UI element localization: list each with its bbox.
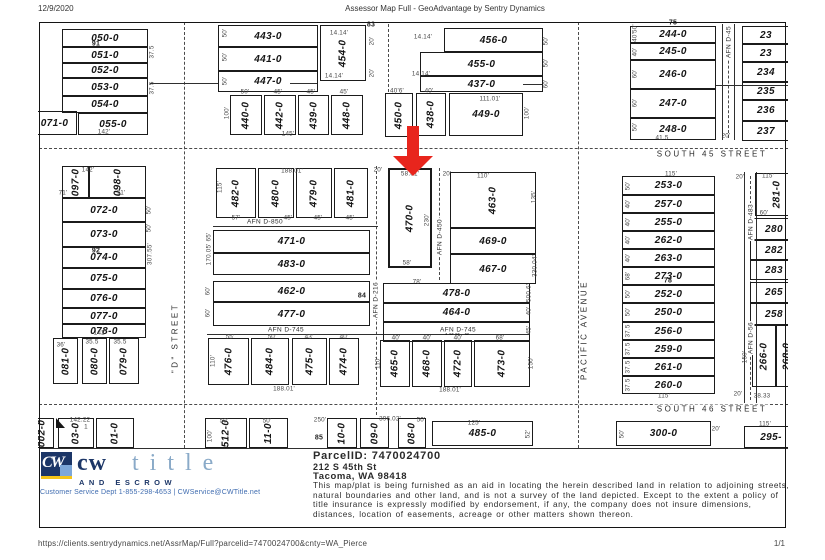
parcel-number: 052-0 — [91, 65, 119, 76]
parcel-number: 266-0 — [759, 342, 770, 370]
parcel: 09-0 — [360, 418, 389, 448]
dimension-label: 40' — [425, 88, 434, 95]
dimension-label: 91 — [92, 41, 100, 48]
dimension-label: 40' — [625, 236, 632, 245]
parcel: 237 — [742, 121, 790, 141]
parcel: 465-0 — [380, 340, 410, 387]
parcel-number: 258 — [765, 309, 783, 320]
dimension-label: 50' — [263, 418, 272, 425]
dimension-label: 45' — [284, 215, 293, 222]
assessor-map-page: 12/9/2020 Assessor Map Full - GeoAdvanta… — [0, 0, 825, 560]
road-label: AFN D-450 — [437, 218, 444, 256]
road-label: AFN D-216 — [373, 281, 380, 319]
survey-marker-icon — [56, 418, 65, 428]
cw-logo-blue-square — [60, 465, 72, 476]
dimension-label: 125' — [468, 420, 481, 427]
dimension-label: 115' — [665, 171, 677, 178]
dimension-label: 115' — [759, 421, 771, 428]
parcel: 441-0 — [218, 47, 318, 71]
subject-arrow-head — [393, 156, 433, 176]
parcel: 263-0 — [622, 249, 715, 267]
dimension-label: 115' — [658, 393, 670, 400]
dimension-label: 37.5 — [625, 324, 632, 337]
dimension-label: 52' — [525, 430, 532, 439]
parcel: 300-0 — [616, 421, 711, 446]
dimension-label: 60' — [205, 287, 212, 296]
dimension-label: 100' — [224, 107, 231, 120]
parcel: 250-0 — [622, 303, 715, 322]
dimension-label: 50' — [146, 224, 153, 233]
parcel: 484-0 — [251, 338, 289, 385]
dimension-label: 40' — [526, 307, 533, 316]
parcel-number: 463-0 — [487, 186, 498, 214]
dimension-label: 40' — [423, 335, 432, 342]
dimension-label: 110' — [210, 355, 217, 367]
parcel: 077-0 — [62, 308, 146, 324]
dimension-label: 45' — [346, 215, 355, 222]
brand-cw: cw — [77, 450, 107, 477]
parcel: 447-0 — [218, 71, 318, 92]
disclaimer-text: This map/plat is being furnished as an a… — [313, 481, 791, 519]
road-label: AFN D-745 — [439, 327, 477, 334]
parcel-number: 479-0 — [308, 179, 319, 207]
parcel: 485-0 — [432, 421, 533, 446]
dimension-label: 230' — [424, 214, 431, 227]
dimension-label: 58' — [403, 260, 412, 267]
dimension-label: 83 — [367, 22, 375, 29]
parcel-number: 455-0 — [468, 59, 496, 70]
page-title: Assessor Map Full - GeoAdvantage by Sent… — [345, 4, 545, 13]
dimension-label: 41.5 — [655, 135, 668, 142]
parcel-number: 483-0 — [278, 259, 306, 270]
dimension-label: 14.14' — [325, 73, 343, 80]
parcel-number: 08-0 — [407, 422, 418, 444]
dimension-label: 50' — [543, 37, 550, 46]
parcel: 076-0 — [62, 289, 146, 308]
dimension-label: 14.14' — [412, 71, 430, 78]
dimension-label: 50' — [220, 418, 229, 425]
parcel-number: 071-0 — [41, 118, 69, 129]
parcel-number: 079-0 — [118, 347, 129, 375]
print-date: 12/9/2020 — [38, 4, 74, 13]
parcel-number: 247-0 — [659, 98, 687, 109]
dimension-label: 20' — [736, 174, 745, 181]
parcel: 072-0 — [62, 198, 146, 222]
parcel: 462-0 — [213, 281, 370, 302]
parcel-number: 262-0 — [655, 235, 683, 246]
dimension-label: 45' — [307, 89, 316, 96]
parcel-number: 261-0 — [655, 362, 683, 373]
parcel: 247-0 — [630, 89, 716, 118]
parcel-number: 259-0 — [655, 344, 683, 355]
parcel-number: 480-0 — [270, 179, 281, 207]
road-label: AFN D-483 — [748, 203, 755, 241]
parcel-number: 454-0 — [337, 39, 348, 67]
parcel: 259-0 — [622, 340, 715, 358]
dimension-label: 40' — [625, 254, 632, 263]
dimension-label: 142.22 — [70, 417, 90, 424]
parcel: 234 — [742, 62, 790, 82]
map-line — [744, 172, 745, 403]
dimension-label: 20' — [369, 69, 376, 78]
parcel-number: 295- — [760, 432, 782, 443]
parcel: 052-0 — [62, 63, 148, 78]
dimension-label: 40' — [454, 335, 463, 342]
parcel-number: 447-0 — [254, 76, 282, 87]
parcel-number: 282 — [765, 245, 783, 256]
dimension-label: 50' — [241, 89, 250, 96]
dimension-label: 38.33 — [754, 393, 771, 400]
dimension-label: 115' — [217, 181, 224, 193]
parcel: 455-0 — [420, 52, 543, 76]
map-line — [39, 448, 788, 449]
parcel: 442-0 — [264, 95, 296, 135]
parcel-number: 10-0 — [337, 422, 348, 444]
parcel: 255-0 — [622, 213, 715, 231]
parcel-number: 467-0 — [479, 264, 507, 275]
dimension-label: 40' — [392, 335, 401, 342]
parcel-number: 281-0 — [771, 181, 782, 209]
parcel-number: 469-0 — [479, 236, 507, 247]
parcel: 471-0 — [213, 230, 370, 253]
dimension-label: 60' — [205, 309, 212, 318]
parcel: 464-0 — [383, 303, 530, 322]
parcel-number: 481-0 — [345, 179, 356, 207]
street-label: PACIFIC AVENUE — [580, 278, 589, 382]
dimension-label: 20' — [443, 171, 452, 178]
dimension-label: 35.5 — [85, 339, 98, 346]
parcel: 480-0 — [258, 168, 294, 218]
dimension-label: 50' — [619, 430, 626, 439]
cw-logo: CW — [41, 452, 72, 479]
dimension-label: 36' — [57, 342, 66, 349]
dimension-label: 40' — [625, 200, 632, 209]
parcel: 463-0 — [450, 172, 536, 228]
parcel-number: 245-0 — [659, 46, 687, 57]
dimension-label: 330.04' — [532, 255, 539, 277]
parcel: 483-0 — [213, 253, 370, 275]
dimension-label: 111.01' — [480, 96, 501, 103]
dimension-label: 40' — [632, 48, 639, 57]
parcel: 467-0 — [450, 254, 536, 284]
dimension-label: 170.05' 65' — [206, 233, 213, 266]
road-label: AFN D-56 — [748, 321, 755, 355]
dimension-label: 43' — [305, 334, 314, 341]
parcel: 481-0 — [334, 168, 368, 218]
dimension-label: 45' — [314, 215, 323, 222]
parcel-number: 054-0 — [91, 99, 119, 110]
dimension-label: 60' — [543, 80, 550, 89]
dimension-label: 188.01' — [281, 168, 303, 175]
dimension-label: 14.14' — [414, 34, 432, 41]
street-label: "D" STREET — [171, 301, 180, 375]
dimension-label: 20' — [722, 133, 731, 140]
dimension-label: 50' — [632, 123, 639, 132]
parcel: 236 — [742, 100, 790, 121]
dimension-label: 50' — [146, 206, 153, 215]
parcel-number: 075-0 — [90, 273, 118, 284]
map-line — [388, 24, 389, 92]
parcel-number: 443-0 — [254, 31, 282, 42]
parcel-number: 235 — [757, 86, 775, 97]
parcel: 257-0 — [622, 195, 715, 213]
parcel-number: 255-0 — [655, 217, 683, 228]
dimension-label: 45' — [274, 89, 283, 96]
dimension-label: 100' — [207, 430, 214, 443]
dimension-label: 71' — [59, 190, 68, 197]
parcel: 244-0 — [630, 26, 716, 43]
parcel: 074-0 — [62, 247, 146, 268]
dimension-label: 45' — [340, 89, 349, 96]
dimension-label: 50' — [222, 53, 229, 62]
parcel: 468-0 — [412, 340, 442, 387]
dimension-label: 55' — [226, 334, 235, 341]
street-label: SOUTH 46 STREET — [655, 405, 769, 414]
parcel-number: 482-0 — [230, 179, 241, 207]
dimension-label: 60' — [760, 210, 769, 217]
parcel: 473-0 — [474, 340, 530, 387]
parcel: 477-0 — [213, 302, 370, 326]
parcel-number: 472-0 — [453, 350, 464, 378]
dimension-label: 37.5 — [625, 378, 632, 391]
dimension-label: 20' — [369, 37, 376, 46]
dimension-label: 68' — [625, 272, 632, 281]
parcel-number: 438-0 — [425, 101, 436, 129]
dimension-label: 110' — [375, 357, 382, 369]
parcel: 266-0 — [752, 325, 776, 387]
parcel-number: 448-0 — [341, 101, 352, 129]
parcel: 256-0 — [622, 322, 715, 340]
parcel-number: 263-0 — [655, 253, 683, 264]
dimension-label: 110' — [477, 173, 489, 180]
parcel-number: 257-0 — [655, 199, 683, 210]
parcel-number: 051-0 — [91, 50, 119, 61]
parcel-number: 248-0 — [659, 124, 687, 135]
dimension-label: 50' — [268, 334, 277, 341]
dimension-label: 142' — [94, 330, 107, 337]
parcel: 235 — [742, 82, 790, 100]
dimension-label: 75 — [669, 20, 677, 27]
parcel-number: 464-0 — [443, 307, 471, 318]
dimension-label: 142' — [98, 129, 111, 136]
parcel-number: 283 — [765, 265, 783, 276]
parcel: 01-0 — [96, 418, 134, 448]
dimension-label: 40' — [340, 334, 349, 341]
parcel: 261-0 — [622, 358, 715, 376]
parcel: 439-0 — [298, 95, 329, 135]
parcel-number: 478-0 — [443, 288, 471, 299]
parcel: 438-0 — [416, 93, 446, 136]
parcel-number: 485-0 — [469, 428, 497, 439]
parcel-number: 081-0 — [60, 347, 71, 375]
dimension-label: 250' — [314, 417, 327, 424]
page-number: 1/1 — [774, 539, 785, 548]
parcel-number: 256-0 — [655, 326, 683, 337]
map-clip-left — [2, 24, 38, 527]
dimension-label: 20' — [712, 426, 721, 433]
dimension-label: 145' — [282, 131, 295, 138]
dimension-label: 57' — [232, 215, 241, 222]
parcel-number: 462-0 — [278, 286, 306, 297]
brand-and-escrow: AND ESCROW — [79, 478, 176, 487]
parcel: 071-0 — [32, 111, 77, 135]
parcel-number: 449-0 — [472, 109, 500, 120]
dimension-label: 50' — [625, 290, 632, 299]
parcel: 448-0 — [331, 95, 363, 135]
parcel-number: 450-0 — [394, 101, 405, 129]
parcel-number: 072-0 — [90, 205, 118, 216]
parcel-number: 002-0 — [37, 419, 48, 447]
parcel-number: 441-0 — [254, 54, 282, 65]
parcel: 053-0 — [62, 78, 148, 96]
dimension-label: 50' — [543, 59, 550, 68]
parcel: 075-0 — [62, 268, 146, 289]
street-label: SOUTH 45 STREET — [655, 150, 769, 159]
dimension-label: 135' — [531, 191, 538, 204]
parcel-number: 244-0 — [659, 29, 687, 40]
parcel-number: 03-0 — [71, 422, 82, 444]
parcel: 055-0 — [78, 113, 148, 135]
parcel-number: 23 — [760, 30, 772, 41]
parcel-number: 473-0 — [496, 350, 507, 378]
brand-title: title — [132, 450, 224, 477]
parcel-number: 237 — [757, 126, 775, 137]
dimension-label: 68' — [496, 335, 505, 342]
dimension-label: 40' — [625, 218, 632, 227]
parcel-number: 477-0 — [278, 309, 306, 320]
parcel: 479-0 — [296, 168, 332, 218]
dimension-label: 307.55' — [147, 243, 154, 265]
parcel-number: 471-0 — [278, 236, 306, 247]
road-label: AFN D-745 — [267, 327, 305, 334]
map-line — [150, 83, 218, 84]
parcel-number: 250-0 — [655, 307, 683, 318]
parcel: 246-0 — [630, 60, 716, 89]
dimension-label: 60' — [632, 99, 639, 108]
parcel-number: 265 — [765, 287, 783, 298]
dimension-label: 50' — [625, 308, 632, 317]
parcel-number: 475-0 — [304, 348, 315, 376]
parcel-number: 077-0 — [90, 311, 118, 322]
parcel: 050-0 — [62, 29, 148, 47]
dimension-label: 50' — [625, 182, 632, 191]
parcel: 456-0 — [444, 28, 543, 52]
parcel: 478-0 — [383, 283, 530, 303]
dimension-label: 85 — [315, 435, 323, 442]
dimension-label: 40'50' — [632, 24, 639, 42]
dimension-label: 396.02' — [379, 416, 401, 423]
parcel: 10-0 — [327, 418, 357, 448]
parcel-number: 439-0 — [308, 101, 319, 129]
dimension-label: 60' — [632, 70, 639, 79]
dimension-label: 92 — [92, 248, 100, 255]
cw-logo-yellow-bar — [41, 476, 72, 479]
parcel-number: 09-0 — [369, 422, 380, 444]
parcel: 440-0 — [230, 95, 262, 135]
parcel-number: 260-0 — [655, 380, 683, 391]
parcel-number: 300-0 — [650, 428, 678, 439]
dimension-label: 37.5 — [625, 342, 632, 355]
source-url: https://clients.sentrydynamics.net/AssrM… — [38, 539, 367, 548]
parcel-number: 234 — [757, 67, 775, 78]
parcel-number: 246-0 — [659, 69, 687, 80]
dimension-label: 20' — [374, 167, 383, 174]
parcel: 472-0 — [444, 340, 472, 387]
dimension-label: 40'6' — [390, 88, 404, 95]
parcel: 073-0 — [62, 222, 146, 247]
parcel: 23 — [742, 26, 790, 44]
dimension-label: 78 — [664, 278, 672, 285]
dimension-label: 50' — [222, 77, 229, 86]
road-label: AFN D-45 — [726, 25, 733, 59]
parcel: 437-0 — [420, 76, 543, 92]
dimension-label: 14.14' — [330, 30, 348, 37]
parcel-number: 470-0 — [404, 204, 415, 232]
map-line — [213, 226, 378, 227]
parcel-number: 236 — [757, 105, 775, 116]
parcel: 474-0 — [329, 338, 359, 385]
dimension-label: 37.5 — [149, 45, 156, 58]
parcel: 262-0 — [622, 231, 715, 249]
parcel-number: 073-0 — [90, 229, 118, 240]
parcel-number: 442-0 — [274, 101, 285, 129]
parcel-number: 468-0 — [421, 350, 432, 378]
parcel-number: 474-0 — [338, 348, 349, 376]
map-clip-right — [788, 24, 825, 527]
dimension-label: 100' — [524, 107, 531, 120]
parcel-id: ParcelID: 7470024700 — [313, 450, 441, 462]
parcel: 475-0 — [292, 338, 327, 385]
dimension-label: 20' — [734, 391, 743, 398]
parcel-number: 23 — [760, 48, 772, 59]
dimension-label: 45' — [526, 326, 533, 335]
parcel-number: 097-0 — [70, 168, 81, 196]
dimension-label: 150' — [528, 357, 535, 370]
parcel-number: 484-0 — [264, 348, 275, 376]
road-label: AFN D-850 — [246, 219, 284, 226]
dimension-label: 1 — [84, 424, 88, 431]
parcel: 248-0 — [630, 118, 716, 140]
dimension-label: 78' — [413, 279, 422, 286]
dimension-label: 188.01' — [439, 387, 461, 394]
parcel-number: 053-0 — [91, 82, 119, 93]
dimension-label: 142' — [82, 167, 95, 174]
parcel: 260-0 — [622, 376, 715, 394]
dimension-label: 84 — [358, 293, 366, 300]
subject-arrow — [407, 126, 419, 158]
parcel-number: 076-0 — [90, 293, 118, 304]
parcel: 469-0 — [450, 228, 536, 254]
parcel-number: 465-0 — [389, 350, 400, 378]
dimension-label: 50' — [417, 417, 426, 424]
map-line — [184, 22, 185, 448]
parcel: 23 — [742, 44, 790, 62]
map-line — [734, 24, 735, 140]
customer-service-line: Customer Service Dept 1-855-298-4653 | C… — [40, 489, 260, 496]
parcel-number: 080-0 — [89, 347, 100, 375]
parcel-number: 280 — [765, 224, 783, 235]
parcel-number: 440-0 — [240, 101, 251, 129]
dimension-label: 37.5 — [625, 360, 632, 373]
map-line — [722, 24, 723, 140]
dimension-label: 50' — [222, 29, 229, 38]
parcel-number: 253-0 — [655, 180, 683, 191]
dimension-label: 500.6' — [526, 284, 533, 302]
parcel: 252-0 — [622, 285, 715, 303]
parcel-number: 01-0 — [110, 422, 121, 444]
parcel: 051-0 — [62, 47, 148, 63]
map-line — [578, 22, 579, 448]
